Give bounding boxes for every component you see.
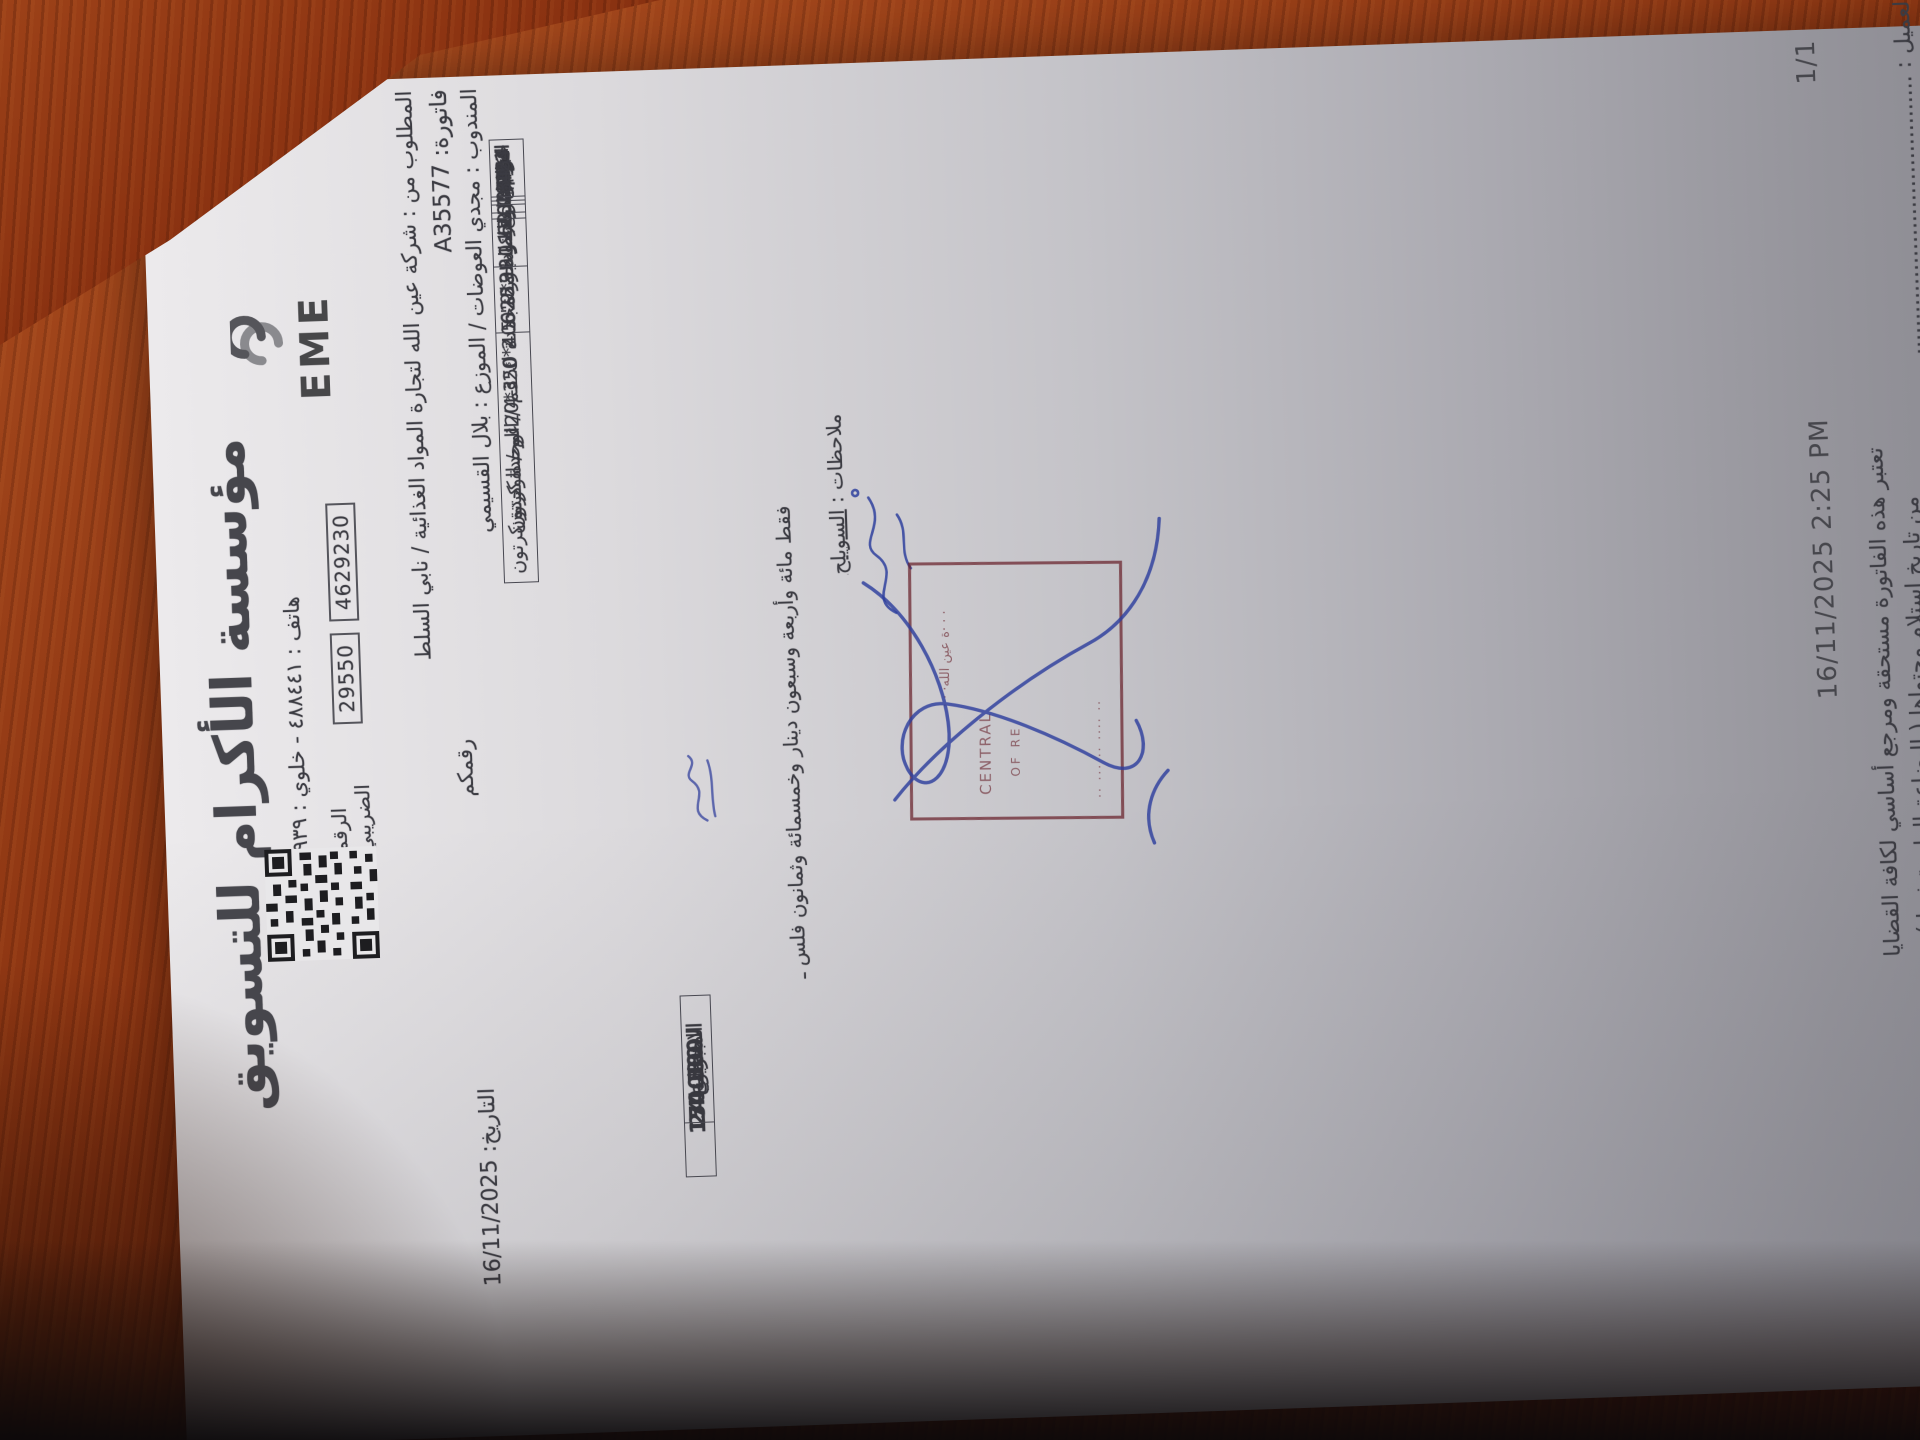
page-number: 1/1: [1791, 39, 1823, 85]
print-timestamp: 16/11/2025 2:25 PM: [1804, 418, 1844, 700]
your-number-label: رقمكم: [452, 739, 478, 798]
print-timestamp-row: 16/11/2025 2:25 PM 1/1: [1791, 39, 1844, 700]
tax-number-box-2: 4629230: [325, 503, 359, 622]
eme-logo: EME: [228, 256, 342, 440]
invoice-number-line: فاتورة: A35577: [426, 89, 458, 253]
eme-swirl-icon: [229, 306, 294, 392]
handwritten-scribble: [675, 748, 723, 830]
customer-signature-line: توقيع العميل : .........................…: [1888, 0, 1920, 401]
signature-dotted-line: ........................................: [1892, 75, 1920, 355]
totals-grand-label: الاجمالي: [680, 994, 715, 1123]
signature: [839, 401, 1206, 893]
customer-signature-label: توقيع العميل :: [1888, 0, 1917, 69]
tax-number-box-1: 29550: [330, 633, 363, 725]
cell-total: 60.784: [489, 138, 528, 267]
amount-in-words: فقط مائة وأربعة وسبعون دينار وخمسمائة وث…: [771, 505, 816, 1105]
desk-shadow-bottom: [0, 1240, 1920, 1440]
eme-logo-text: EME: [290, 256, 342, 437]
desk-photo: مؤسسة الأكرام للتسويق هاتف : ٤٨٨٤٤١ - خل…: [0, 0, 1920, 1440]
tax-number-label: الرقم الضريبي: [324, 735, 376, 854]
tax-number-row: الرقم الضريبي 29550 4629230: [316, 502, 376, 853]
